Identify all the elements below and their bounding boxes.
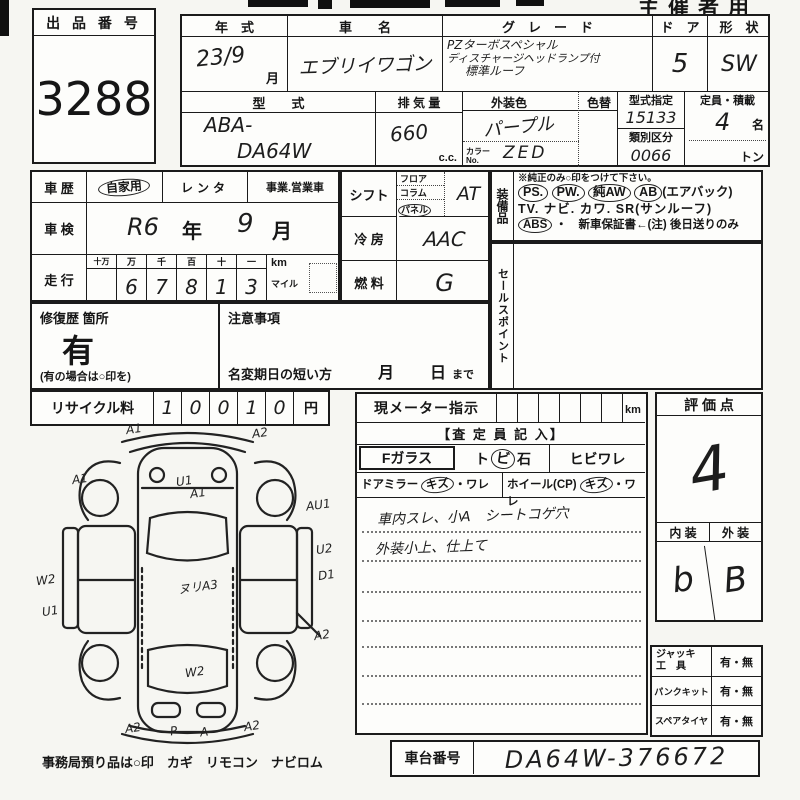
- stone-chip-option: ト ビ 石: [457, 445, 549, 472]
- lot-number: 3288: [34, 36, 154, 162]
- shift-label: シフト: [342, 172, 397, 216]
- ac-label: 冷 房: [342, 216, 397, 260]
- shift-value: AT: [445, 172, 492, 216]
- shape-label: 形 状: [708, 16, 770, 37]
- assessor-header: 【査 定 員 記 入】: [357, 422, 645, 444]
- scan-artifact: [0, 0, 9, 36]
- class-value: 0066: [618, 144, 684, 166]
- fuel-value: G: [397, 260, 492, 304]
- equipment-box: 装備品 ※純正のみ○印をつけて下さい。 PS. PW. 純AW AB(エアバック…: [490, 170, 763, 242]
- history-table: 車 歴 自家用 レンタ 事業.営業車 車 検 R6 年 9 月 走 行 十万 万…: [30, 170, 340, 302]
- jack-label: ジャッキ 工 具: [652, 647, 712, 676]
- meter-digit-cell: [560, 394, 581, 422]
- pw-circled: PW.: [552, 184, 585, 202]
- ab-circled: AB: [634, 184, 662, 202]
- capacity-divider: [689, 140, 766, 141]
- equipment-line1: PS. PW. 純AW AB(エアバック): [518, 184, 761, 202]
- capacity-value: 4: [715, 108, 730, 136]
- evaluation-box: 評 価 点 4 内 装 外 装 b B: [655, 392, 763, 622]
- displacement-cell: 排 気 量 660 c.c.: [375, 92, 462, 167]
- rename-deadline-label: 名変期日の短い方: [228, 364, 332, 383]
- assessor-note-1: 車内スレ、小A シートコゲ穴: [377, 503, 569, 530]
- ps-circled: PS.: [518, 184, 548, 202]
- capacity-unit2: トン: [740, 148, 764, 165]
- color-cell: 外装色 色替 パープル カラーNo. ZED: [462, 92, 617, 167]
- name-cell: 車 名 エブリイワゴン: [287, 16, 442, 92]
- mileage-unit-checkbox: [309, 263, 337, 293]
- repair-value: 有: [62, 326, 94, 372]
- repair-note: (有の場合は○印を): [40, 368, 131, 384]
- displacement-label: 排 気 量: [376, 92, 462, 113]
- rename-made: まで: [452, 366, 474, 382]
- notes-rule: [362, 703, 641, 705]
- equipment-line2: TV. ナビ. カワ. SR(サンルーフ): [518, 202, 761, 217]
- organizer-label: 主催者用: [638, 0, 778, 14]
- notes-rule: [362, 646, 641, 648]
- shape-value: SW: [708, 37, 770, 91]
- abs-circled: ABS: [518, 217, 552, 233]
- meter-unit: km: [625, 404, 641, 416]
- spare-tire-label: スペアタイヤ: [652, 705, 712, 735]
- aw-circled: 純AW: [588, 184, 631, 202]
- displacement-value: 660: [389, 119, 429, 146]
- equipment-line3: ABS ・ 新車保証書←(注) 後日送りのみ: [518, 217, 761, 233]
- puncture-kit-value: 有・無: [712, 676, 761, 705]
- capacity-unit1: 名: [752, 116, 764, 133]
- cutoff-title-fragment: [445, 0, 500, 7]
- inspection-label: 車 検: [32, 202, 87, 254]
- year-label: 年 式: [182, 16, 287, 37]
- color-no-value: ZED: [503, 143, 547, 163]
- mirror-scratch-circled: キズ: [421, 475, 456, 495]
- lot-box: 出 品 番 号 3288: [32, 8, 156, 164]
- shift-options: フロア コラム パネル: [397, 172, 445, 216]
- grade-line3: 標準ルーフ: [447, 65, 648, 79]
- damage-diagram: A1 A2 A1 U1 A1 AU1 U2 D1 W2 U1 ヌリA3 A2 W…: [30, 418, 345, 748]
- cutoff-title-fragment: [350, 0, 430, 8]
- designation-label: 型式指定: [618, 92, 684, 107]
- meter-digit-cell: [518, 394, 539, 422]
- cutoff-title-fragment: [248, 0, 308, 7]
- doors-label: ド ア: [653, 16, 707, 37]
- sales-point-label: セールスポイント: [492, 244, 514, 388]
- color-label: 外装色: [491, 94, 527, 111]
- evaluation-score: 4: [649, 408, 770, 530]
- assessor-note-2: 外装小上、仕上て: [375, 535, 488, 559]
- grade-line1: PZターボスペシャル: [447, 39, 648, 53]
- caution-label: 注意事項: [228, 308, 280, 327]
- equipment-note: ※純正のみ○印をつけて下さい。: [518, 173, 761, 184]
- notes-rule: [362, 591, 641, 593]
- door-mirror-option: ドアミラー キズ・ワレ: [361, 476, 489, 493]
- crack-option: ヒビワレ: [549, 445, 645, 472]
- meter-digit-cell: [497, 394, 518, 422]
- chassis-row: 車台番号 DA64W-376672: [390, 740, 760, 777]
- meter-digit-cell: [539, 394, 560, 422]
- meter-digit-cell: [602, 394, 623, 422]
- color-change-label: 色替: [587, 94, 611, 111]
- doors-cell: ド ア 5: [652, 16, 707, 92]
- model-label: 型 式: [182, 92, 375, 113]
- grade-cell: グ レ ー ド PZターボスペシャル ディスチャージヘッドランプ付 標準ルーフ: [442, 16, 652, 92]
- ac-value: AAC: [395, 216, 495, 260]
- name-value: エブリイワゴン: [287, 34, 443, 93]
- history-label: 車 歴: [32, 172, 87, 202]
- designation-cell: 型式指定 15133 類別区分 0066: [617, 92, 684, 167]
- jack-value: 有・無: [712, 647, 761, 676]
- color-value: パープル: [482, 109, 555, 142]
- interior-exterior-header: 内 装 外 装: [657, 522, 761, 542]
- model-cell: 型 式 ABA- DA64W: [182, 92, 375, 167]
- notes-rule: [362, 531, 641, 533]
- tools-box: ジャッキ 工 具 有・無 パンクキット 有・無 スペアタイヤ 有・無: [650, 645, 763, 737]
- notes-rule: [362, 560, 641, 562]
- organizer-label-wrap: 主催者用: [638, 0, 778, 14]
- color-no-label: カラーNo.: [466, 148, 492, 166]
- capacity-label: 定員・積載: [685, 92, 770, 108]
- stone-chip-circled: ビ: [490, 447, 516, 470]
- rename-month: 月: [378, 359, 394, 383]
- puncture-kit-label: パンクキット: [652, 676, 712, 705]
- meter-label: 現メーター指示: [357, 394, 497, 422]
- notes-rule: [362, 620, 641, 622]
- designation-value: 15133: [618, 107, 684, 128]
- mileage-label: 走 行: [32, 254, 87, 304]
- notes-rule: [362, 675, 641, 677]
- name-label: 車 名: [288, 16, 442, 37]
- vehicle-table: 年 式 23/9 月 車 名 エブリイワゴン グ レ ー ド PZターボスペシャ…: [180, 14, 770, 167]
- chassis-label: 車台番号: [392, 742, 474, 774]
- exterior-score: B: [704, 539, 766, 621]
- equipment-label: 装備品: [492, 172, 514, 240]
- repair-label: 修復歴 箇所: [40, 308, 109, 327]
- front-glass-label: Fガラス: [359, 446, 455, 470]
- year-unit: 月: [266, 68, 279, 87]
- caution-box: 注意事項 名変期日の短い方 月 日 まで: [218, 302, 490, 390]
- meter-digit-cell: [581, 394, 602, 422]
- mileage-value: 十万 万6 千7 百8 十1 一3 km マイル: [87, 254, 342, 304]
- grade-label: グ レ ー ド: [443, 16, 652, 37]
- model-line2: DA64W: [237, 139, 311, 163]
- rename-day: 日: [430, 359, 446, 383]
- doors-value: 5: [653, 37, 707, 91]
- mirror-wheel-row: ドアミラー キズ・ワレ ホイール(CP) キズ・ワレ: [357, 472, 645, 498]
- year-value: 23/9: [195, 42, 247, 72]
- inspection-value: R6 年 9 月: [87, 202, 342, 254]
- sales-point-box: セールスポイント: [490, 242, 763, 390]
- fuel-label: 燃 料: [342, 260, 397, 304]
- cutoff-title-fragment: [318, 0, 332, 9]
- model-line1: ABA-: [204, 113, 252, 137]
- lot-label: 出 品 番 号: [34, 10, 154, 36]
- auction-sheet: 主催者用 出 品 番 号 3288 年 式 23/9 月 車 名 エブリイワゴン…: [0, 0, 800, 800]
- history-rental: レンタ: [162, 172, 247, 202]
- office-deposit-note: 事務局預り品は○印 カギ リモコン ナビロム: [42, 752, 323, 771]
- displacement-unit: c.c.: [439, 152, 457, 164]
- controls-table: シフト フロア コラム パネル AT 冷 房 AAC 燃 料 G: [340, 170, 490, 302]
- year-cell: 年 式 23/9 月: [182, 16, 287, 92]
- class-label: 類別区分: [618, 128, 684, 144]
- interior-exterior-scores: b B: [657, 542, 761, 620]
- wheel-option: ホイール(CP) キズ・ワレ: [502, 473, 645, 498]
- chassis-value: DA64W-376672: [474, 740, 760, 777]
- repair-box: 修復歴 箇所 有 (有の場合は○印を): [30, 302, 220, 390]
- history-commercial: 事業.営業車: [247, 172, 342, 202]
- wheel-scratch-circled: キズ: [579, 475, 614, 495]
- history-private: 自家用: [87, 172, 162, 202]
- capacity-cell: 定員・積載 4 名 トン: [684, 92, 770, 167]
- shape-cell: 形 状 SW: [707, 16, 770, 92]
- spare-tire-value: 有・無: [712, 705, 761, 735]
- glass-row: Fガラス ト ビ 石 ヒビワレ: [357, 444, 645, 472]
- cutoff-title-fragment: [516, 0, 544, 6]
- inspector-box: 現メーター指示 km 【査 定 員 記 入】 Fガラス ト ビ 石 ヒビワレ ド…: [355, 392, 648, 735]
